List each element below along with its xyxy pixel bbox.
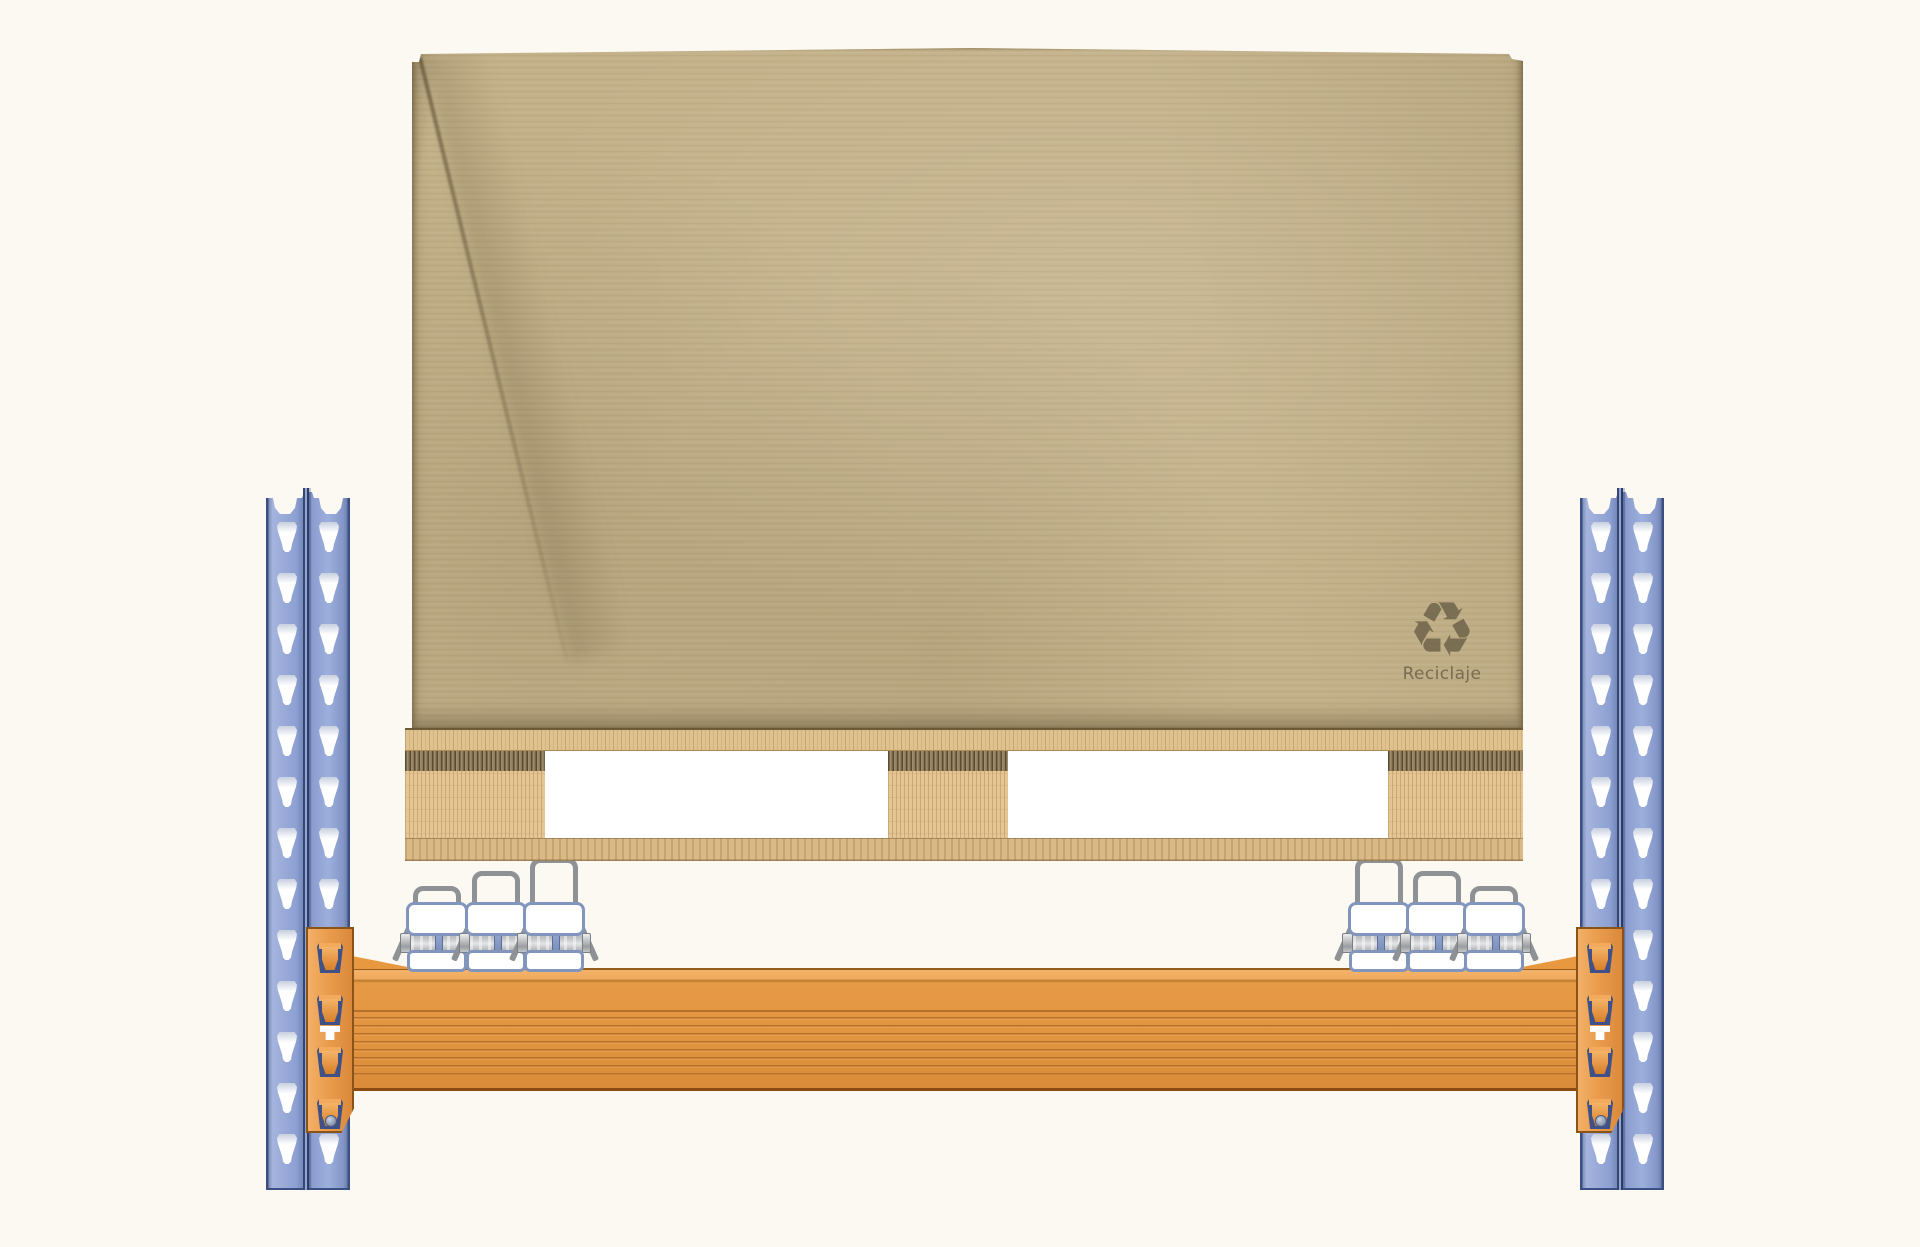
roller-base-plate — [1464, 950, 1524, 972]
roller-top-plate — [1348, 902, 1410, 936]
bracket-empty-slot — [320, 1026, 340, 1040]
recycle-icon: ♻ — [1392, 592, 1492, 668]
rack-beam — [352, 968, 1578, 1091]
beam-hook — [1587, 1047, 1613, 1077]
bracket-rivet — [1595, 1115, 1607, 1127]
pallet-roller-unit — [405, 886, 469, 968]
recycle-mark: ♻ Reciclaje — [1392, 592, 1492, 684]
roller-top-plate — [465, 902, 527, 936]
bracket-empty-slot — [1590, 1026, 1610, 1040]
beam-hook — [1587, 995, 1613, 1025]
pallet-top-deck-board — [405, 728, 1523, 751]
rack-diagram-stage: ♻ Reciclaje — [0, 0, 1920, 1247]
roller-top-plate — [1406, 902, 1468, 936]
beam-hook — [317, 1047, 343, 1077]
pallet-block — [405, 749, 545, 838]
paper-crease-shadow — [424, 39, 649, 660]
pallet-block — [888, 749, 1008, 838]
pallet-roller-unit — [1462, 886, 1526, 968]
beam-groove-stripes — [352, 1017, 1578, 1075]
beam-hook — [1587, 943, 1613, 973]
beam-bracket-left — [306, 927, 354, 1133]
pallet-block — [1388, 749, 1523, 838]
pallet-roller-unit — [464, 871, 528, 968]
beam-hook — [317, 995, 343, 1025]
roller-top-plate — [1463, 902, 1525, 936]
pallet-roller-unit — [522, 858, 586, 968]
beam-hook — [317, 943, 343, 973]
beam-bracket-right — [1576, 927, 1624, 1133]
pallet-bottom-deck-board — [405, 838, 1523, 861]
pallet-roller-unit — [1405, 871, 1469, 968]
roller-top-plate — [523, 902, 585, 936]
roller-base-plate — [524, 950, 584, 972]
kraft-paper-load — [412, 46, 1523, 728]
recycle-label: Reciclaje — [1392, 664, 1492, 684]
roller-top-plate — [406, 902, 468, 936]
bracket-rivet — [325, 1115, 337, 1127]
